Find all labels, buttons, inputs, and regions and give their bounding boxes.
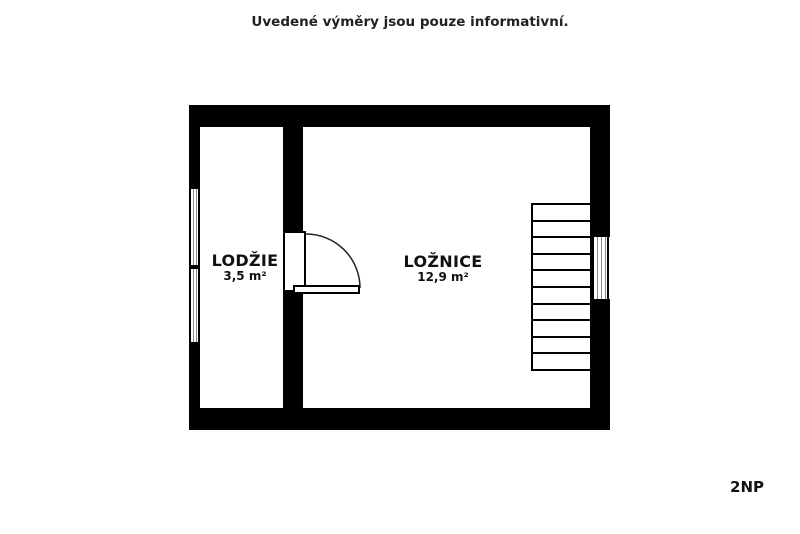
room-area: 3,5 m² <box>223 270 266 284</box>
room-label-lodzie: LODŽIE 3,5 m² <box>212 252 279 284</box>
room-area: 12,9 m² <box>417 271 469 285</box>
staircase <box>531 203 592 371</box>
wall-bottom <box>189 408 610 430</box>
room-label-loznice: LOŽNICE 12,9 m² <box>404 253 483 285</box>
floor-label: 2NP <box>730 478 764 496</box>
stair-tread <box>533 288 590 305</box>
wall-partition-lower <box>283 292 303 408</box>
stair-tread <box>533 305 590 322</box>
wall-top <box>189 105 610 127</box>
window-left-lower-icon <box>189 269 200 342</box>
window-right-icon <box>592 237 609 299</box>
room-name: LOŽNICE <box>404 253 483 271</box>
wall-partition-upper <box>283 127 303 231</box>
stair-tread <box>533 271 590 288</box>
wall-left-upper <box>189 127 200 189</box>
wall-right-upper <box>590 127 610 237</box>
stair-tread <box>533 354 590 369</box>
stair-tread <box>533 222 590 239</box>
wall-right-lower <box>590 299 610 408</box>
room-name: LODŽIE <box>212 252 279 270</box>
stair-tread <box>533 238 590 255</box>
window-left-upper-icon <box>189 189 200 265</box>
door-leaf <box>293 285 360 294</box>
disclaimer-text: Uvedené výměry jsou pouze informativní. <box>251 14 568 30</box>
stair-tread <box>533 255 590 272</box>
stair-tread <box>533 205 590 222</box>
floor-plan-page: Uvedené výměry jsou pouze informativní. … <box>0 0 800 534</box>
stair-tread <box>533 338 590 355</box>
wall-left-lower <box>189 342 200 408</box>
stair-tread <box>533 321 590 338</box>
